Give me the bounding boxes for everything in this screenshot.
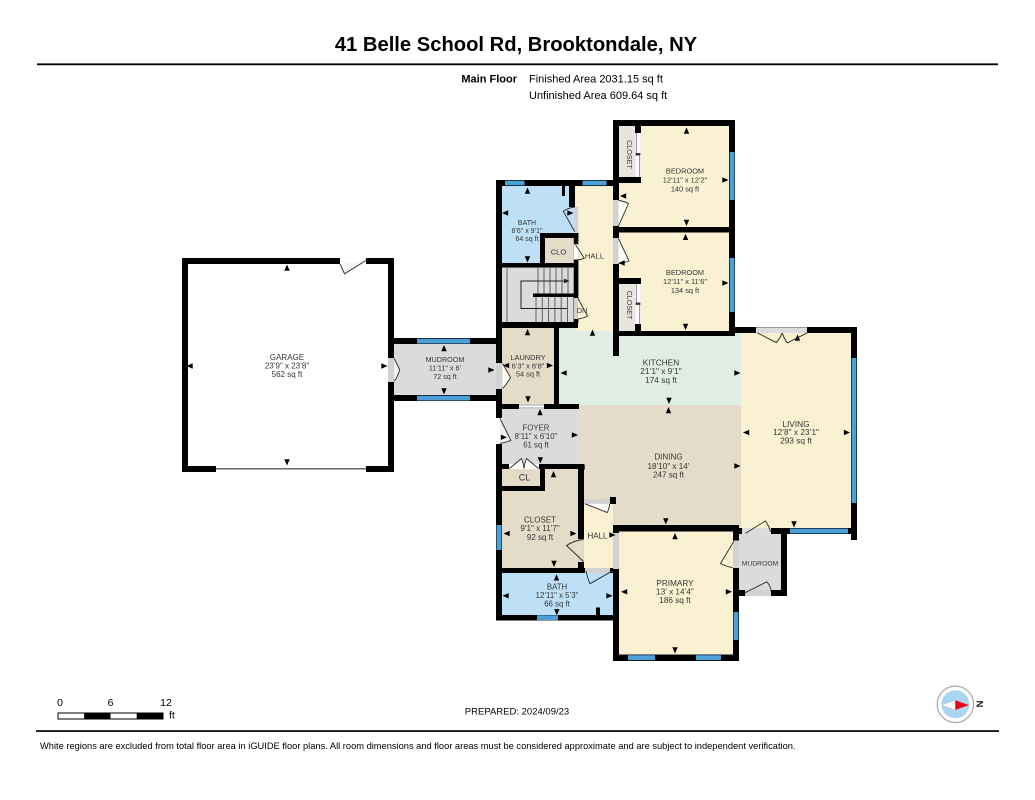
svg-text:Main Floor: Main Floor [461,73,517,85]
svg-text:54 sq ft: 54 sq ft [516,370,540,379]
svg-text:CLOSET: CLOSET [524,516,556,525]
svg-text:140 sq ft: 140 sq ft [671,184,699,193]
svg-text:Finished Area 2031.15 sq ft: Finished Area 2031.15 sq ft [529,73,663,85]
svg-text:BEDROOM: BEDROOM [666,166,704,175]
svg-text:174 sq ft: 174 sq ft [645,375,678,385]
svg-text:92 sq ft: 92 sq ft [527,533,554,542]
svg-text:CLOSET: CLOSET [625,291,634,320]
svg-text:BATH: BATH [518,220,536,227]
svg-text:8’6" x 9’1": 8’6" x 9’1" [511,228,543,235]
svg-text:12’11" x 11’6": 12’11" x 11’6" [663,277,707,286]
svg-text:GARAGE: GARAGE [270,353,304,362]
svg-text:ft: ft [169,710,175,722]
svg-text:64 sq ft: 64 sq ft [516,236,539,243]
svg-text:293 sq ft: 293 sq ft [780,435,813,445]
svg-text:CL: CL [519,473,531,483]
svg-text:66 sq ft: 66 sq ft [544,600,570,609]
svg-text:61 sq ft: 61 sq ft [523,440,549,449]
svg-text:BEDROOM: BEDROOM [666,268,704,277]
svg-text:N: N [974,700,985,707]
svg-text:23’9" x 23’8": 23’9" x 23’8" [265,362,310,371]
svg-text:0: 0 [57,697,63,709]
svg-text:186 sq ft: 186 sq ft [659,596,691,605]
svg-text:CLO: CLO [551,248,567,257]
svg-text:HALL: HALL [587,532,608,541]
svg-text:HALL: HALL [585,252,605,261]
svg-text:12’11" x 12’2": 12’11" x 12’2" [663,175,708,184]
svg-text:MUDROOM: MUDROOM [742,561,779,568]
svg-text:6: 6 [108,697,114,709]
svg-text:CLOSET: CLOSET [625,140,634,169]
svg-text:White regions are excluded fro: White regions are excluded from total fl… [40,741,796,751]
svg-text:DINING: DINING [654,453,682,462]
svg-text:41 Belle School Rd, Brooktonda: 41 Belle School Rd, Brooktondale, NY [335,34,698,56]
svg-text:9’1" x 11’7": 9’1" x 11’7" [520,524,559,533]
svg-text:562 sq ft: 562 sq ft [272,370,303,379]
svg-text:Unfinished Area 609.64 sq ft: Unfinished Area 609.64 sq ft [529,90,667,102]
svg-text:DN: DN [577,306,588,315]
svg-text:247 sq ft: 247 sq ft [653,470,685,479]
svg-text:12: 12 [160,697,172,709]
svg-text:134 sq ft: 134 sq ft [671,286,699,295]
svg-text:PREPARED: 2024/09/23: PREPARED: 2024/09/23 [465,707,569,718]
svg-text:72 sq ft: 72 sq ft [433,372,457,381]
